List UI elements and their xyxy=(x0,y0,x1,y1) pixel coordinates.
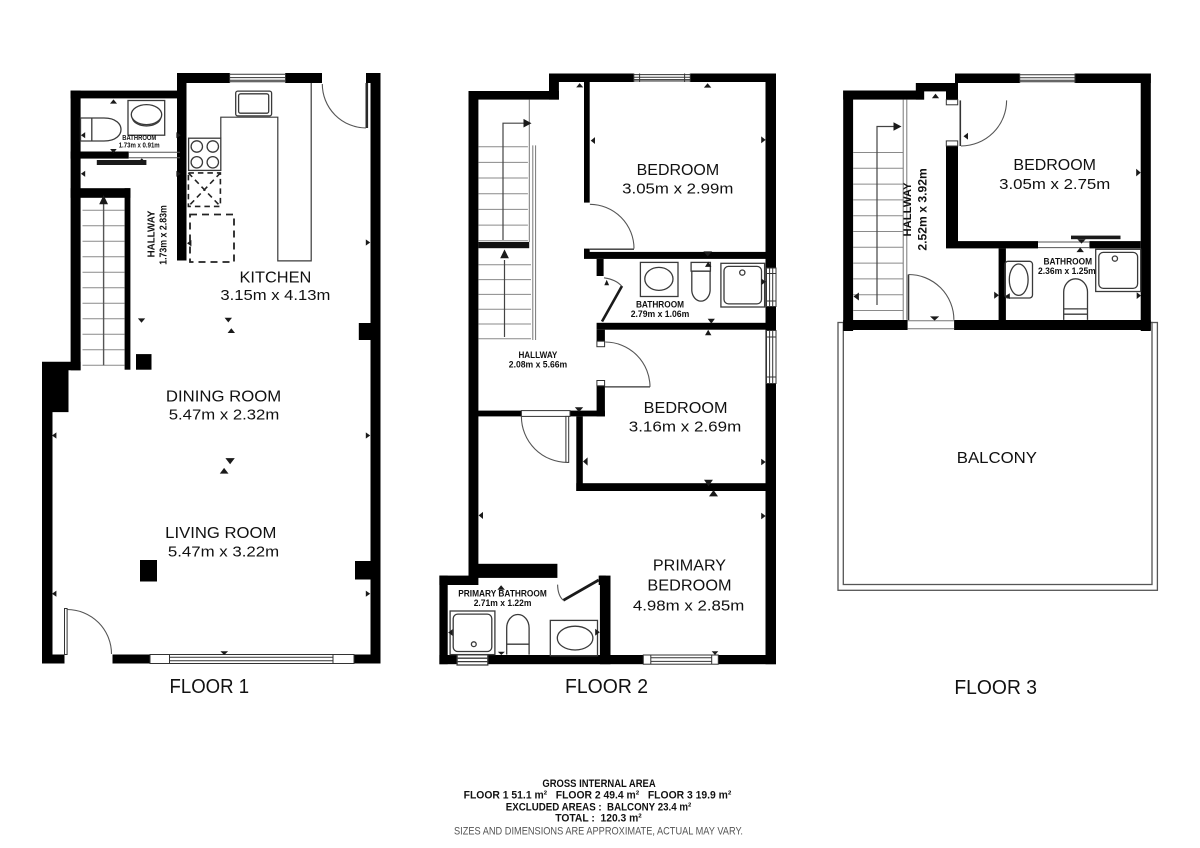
svg-text:FLOOR 2: FLOOR 2 xyxy=(565,676,648,698)
svg-text:3.05m x 2.75m: 3.05m x 2.75m xyxy=(999,176,1110,193)
svg-text:HALLWAY: HALLWAY xyxy=(145,211,157,258)
svg-text:BALCONY: BALCONY xyxy=(957,450,1037,467)
svg-text:KITCHEN: KITCHEN xyxy=(240,270,312,287)
svg-text:PRIMARY: PRIMARY xyxy=(653,558,726,575)
svg-text:BEDROOM: BEDROOM xyxy=(637,162,720,179)
svg-text:1.73m x 0.91m: 1.73m x 0.91m xyxy=(119,142,160,149)
svg-text:4.98m x 2.85m: 4.98m x 2.85m xyxy=(633,598,745,615)
svg-text:FLOOR 1: FLOOR 1 xyxy=(170,676,250,698)
svg-text:2.71m x 1.22m: 2.71m x 1.22m xyxy=(474,598,532,609)
svg-text:GROSS INTERNAL AREA: GROSS INTERNAL AREA xyxy=(542,778,655,790)
svg-text:3.05m x 2.99m: 3.05m x 2.99m xyxy=(622,181,733,198)
svg-text:3.15m x 4.13m: 3.15m x 4.13m xyxy=(220,287,330,304)
svg-text:SIZES AND DIMENSIONS ARE APPRO: SIZES AND DIMENSIONS ARE APPROXIMATE, AC… xyxy=(454,826,743,838)
svg-text:BEDROOM: BEDROOM xyxy=(1013,157,1096,174)
svg-text:1.73m x 2.83m: 1.73m x 2.83m xyxy=(158,205,170,265)
svg-text:3.16m x 2.69m: 3.16m x 2.69m xyxy=(629,419,742,436)
svg-text:TOTAL : 120.3 m²: TOTAL : 120.3 m² xyxy=(555,812,642,824)
svg-text:2.08m x 5.66m: 2.08m x 5.66m xyxy=(509,359,567,369)
svg-text:5.47m x 3.22m: 5.47m x 3.22m xyxy=(168,543,279,560)
svg-text:2.36m x 1.25m: 2.36m x 1.25m xyxy=(1038,266,1096,277)
svg-text:FLOOR 1 51.1 m² FLOOR 2 49.4: FLOOR 1 51.1 m² FLOOR 2 49.4 m² FLOOR 3 … xyxy=(464,790,732,802)
svg-text:2.52m x 3.92m: 2.52m x 3.92m xyxy=(915,168,929,250)
svg-text:2.79m x 1.06m: 2.79m x 1.06m xyxy=(631,309,690,320)
svg-text:DINING ROOM: DINING ROOM xyxy=(166,389,281,406)
svg-text:BEDROOM: BEDROOM xyxy=(644,400,728,417)
svg-text:5.47m x 2.32m: 5.47m x 2.32m xyxy=(169,407,280,424)
svg-text:BEDROOM: BEDROOM xyxy=(647,578,731,595)
svg-text:LIVING ROOM: LIVING ROOM xyxy=(165,525,276,542)
svg-text:FLOOR 3: FLOOR 3 xyxy=(954,677,1037,699)
svg-text:BATHROOM: BATHROOM xyxy=(122,135,156,142)
svg-text:HALLWAY: HALLWAY xyxy=(902,182,914,237)
